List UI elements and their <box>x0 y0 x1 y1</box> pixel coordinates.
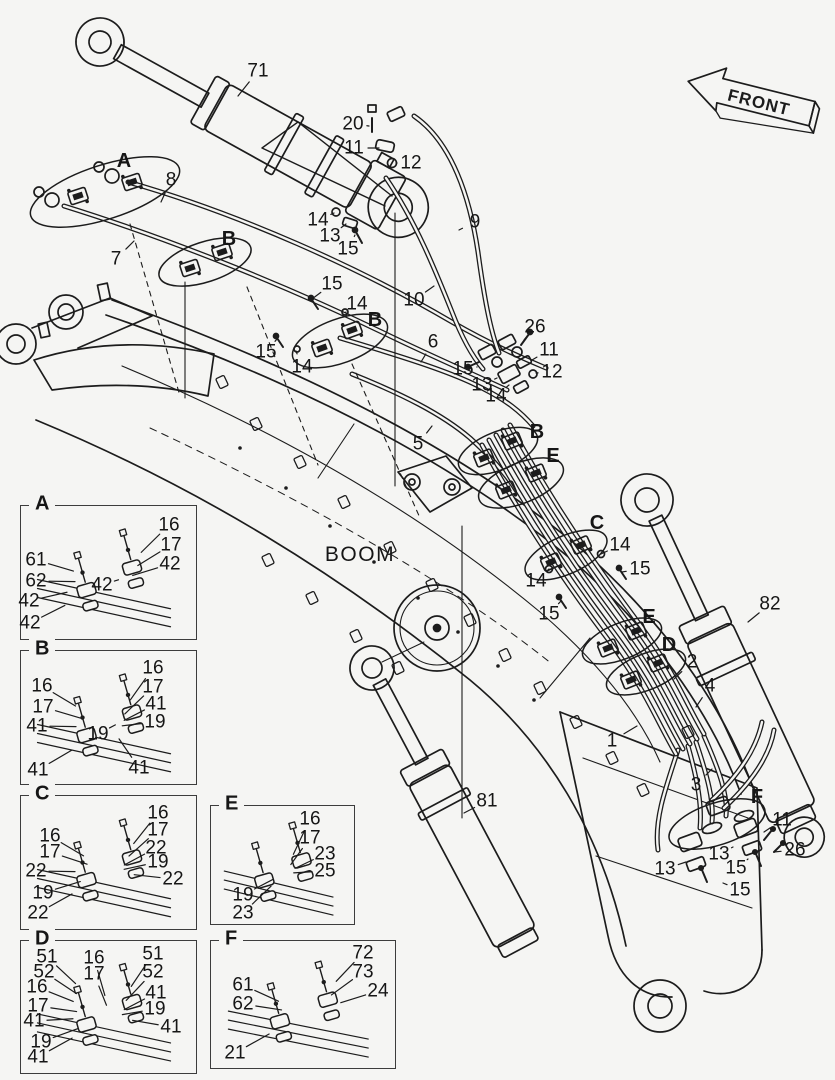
part-number-label: 41 <box>26 717 47 736</box>
callout-letter: B <box>368 310 382 330</box>
callout-letter: E <box>546 446 559 466</box>
cylinder-82 <box>608 463 835 868</box>
part-number-label: 16 <box>142 659 163 678</box>
part-number-label: 23 <box>232 904 253 923</box>
part-number-label: 71 <box>247 62 268 81</box>
part-number-label: 16 <box>31 677 52 696</box>
part-number-label: 16 <box>299 810 320 829</box>
part-number-label: 15 <box>255 343 276 362</box>
part-number-label: 42 <box>19 614 40 633</box>
part-number-label: 15 <box>321 275 342 294</box>
part-number-label: 41 <box>27 761 48 780</box>
part-number-label: 24 <box>367 982 388 1001</box>
front-arrow: FRONT <box>681 60 823 141</box>
callout-letter: B <box>530 422 544 442</box>
part-number-label: 25 <box>314 862 335 881</box>
part-number-label: 19 <box>144 713 165 732</box>
cylinder-81 <box>337 635 546 961</box>
part-number-label: 62 <box>232 995 253 1014</box>
part-number-label: 15 <box>337 240 358 259</box>
part-number-label: 22 <box>25 862 46 881</box>
part-number-label: 9 <box>470 213 481 232</box>
callout-letter: A <box>117 151 131 171</box>
part-number-label: 41 <box>27 1048 48 1067</box>
part-number-label: 6 <box>428 333 439 352</box>
part-number-label: 14 <box>609 536 630 555</box>
part-number-label: 81 <box>476 792 497 811</box>
callout-letter: C <box>590 513 604 533</box>
part-number-label: 72 <box>352 944 373 963</box>
pipe-end-fittings <box>34 162 119 207</box>
detail-box-title: A <box>29 493 55 513</box>
part-number-label: 11 <box>344 139 364 158</box>
boom-cylinder-71 <box>63 0 444 251</box>
callout-letter: F <box>751 787 763 807</box>
part-number-label: 17 <box>83 965 104 984</box>
part-number-label: 12 <box>541 363 562 382</box>
callout-letter: D <box>662 635 676 655</box>
parts-diagram-page: FRONT BOOM 71201112914131510A87B15141514… <box>0 0 835 1080</box>
part-number-label: 12 <box>400 154 421 173</box>
part-number-label: 14 <box>485 387 506 406</box>
detail-box-title: E <box>219 793 244 813</box>
part-number-label: 15 <box>452 360 473 379</box>
part-number-label: 19 <box>87 725 108 744</box>
part-number-label: 17 <box>32 698 53 717</box>
part-number-label: 19 <box>32 884 53 903</box>
detail-box-title: F <box>219 928 243 948</box>
part-number-label: 11 <box>772 811 792 830</box>
part-number-label: 42 <box>159 555 180 574</box>
part-number-label: 3 <box>691 776 702 795</box>
part-number-label: 1 <box>607 732 618 751</box>
part-number-label: 13 <box>654 860 675 879</box>
part-number-label: 42 <box>18 592 39 611</box>
part-number-label: 22 <box>27 904 48 923</box>
part-number-label: 15 <box>629 560 650 579</box>
part-number-label: 17 <box>39 843 60 862</box>
part-number-label: 21 <box>224 1044 245 1063</box>
detail-box-title: C <box>29 783 55 803</box>
part-number-label: 11 <box>539 341 559 360</box>
part-number-label: 62 <box>25 572 46 591</box>
part-number-label: 41 <box>160 1018 181 1037</box>
part-number-label: 20 <box>342 115 363 134</box>
part-number-label: 14 <box>346 295 367 314</box>
detail-box-title: B <box>29 638 55 658</box>
part-number-label: 73 <box>352 963 373 982</box>
part-number-label: 26 <box>784 841 805 860</box>
boom-label: BOOM <box>325 543 395 567</box>
detail-box-title: D <box>29 928 55 948</box>
part-number-label: 10 <box>403 291 424 310</box>
part-number-label: 61 <box>25 551 46 570</box>
part-number-label: 41 <box>128 759 149 778</box>
part-number-label: 15 <box>729 881 750 900</box>
callout-ellipse-b1 <box>153 228 257 296</box>
part-number-label: 17 <box>160 536 181 555</box>
part-number-label: 15 <box>725 859 746 878</box>
part-number-label: 26 <box>524 318 545 337</box>
part-number-label: 16 <box>26 978 47 997</box>
part-number-label: 42 <box>91 576 112 595</box>
part-number-label: 82 <box>759 595 780 614</box>
part-number-label: 22 <box>162 870 183 889</box>
part-number-label: 61 <box>232 976 253 995</box>
part-number-label: 14 <box>525 572 546 591</box>
part-number-label: 7 <box>111 250 122 269</box>
part-number-label: 52 <box>142 963 163 982</box>
part-number-label: 14 <box>291 358 312 377</box>
part-number-label: 41 <box>23 1012 44 1031</box>
callout-letter: E <box>642 607 655 627</box>
callout-letter: B <box>222 229 236 249</box>
part-number-label: 15 <box>538 605 559 624</box>
part-number-label: 16 <box>158 516 179 535</box>
part-number-label: 2 <box>687 653 698 672</box>
part-number-label: 5 <box>413 435 424 454</box>
part-number-label: 8 <box>166 171 177 190</box>
part-number-label: 4 <box>705 677 716 696</box>
